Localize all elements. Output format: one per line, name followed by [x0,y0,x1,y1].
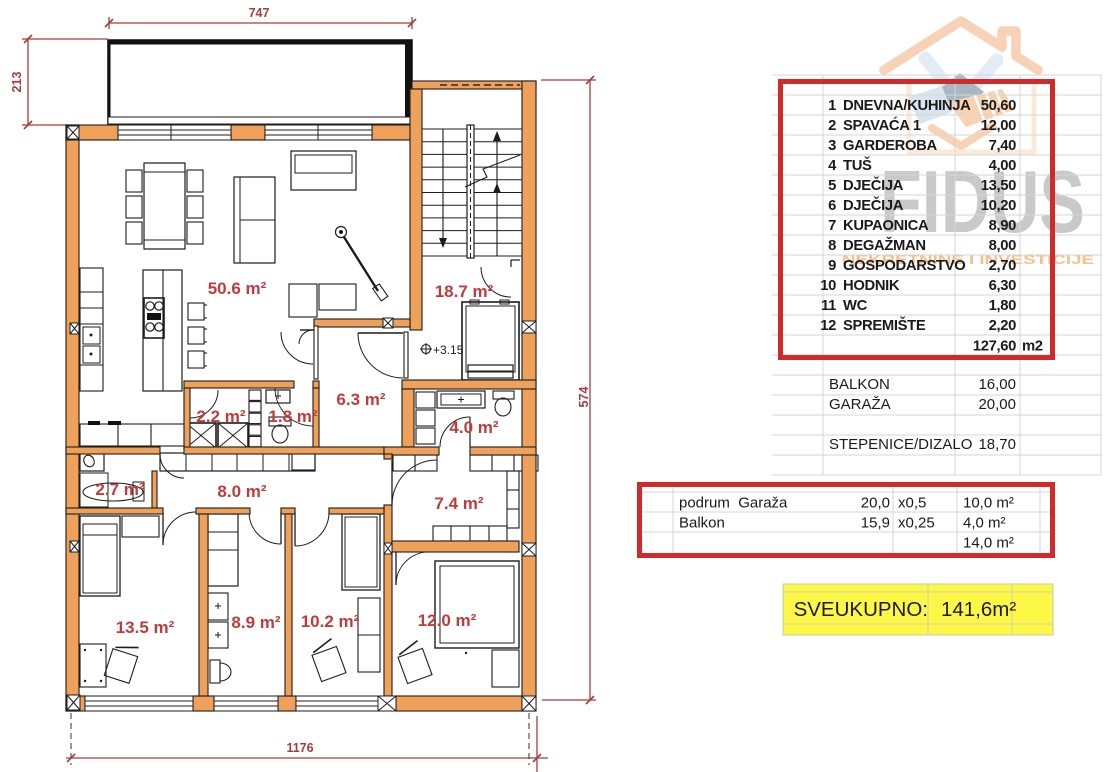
svg-text:8.9 m²: 8.9 m² [231,613,280,632]
svg-text:GARAŽA: GARAŽA [829,396,891,413]
svg-text:STEPENICE/DIZALO: STEPENICE/DIZALO [829,436,972,453]
svg-text:12,00: 12,00 [981,118,1016,134]
svg-text:5: 5 [828,178,836,194]
svg-text:1: 1 [828,98,836,114]
svg-text:18,70: 18,70 [978,436,1016,453]
svg-text:10.2 m²: 10.2 m² [301,612,360,631]
svg-text:SVEUKUPNO:: SVEUKUPNO: [794,598,928,621]
svg-text:10,20: 10,20 [981,198,1016,214]
svg-text:12: 12 [820,318,836,334]
svg-text:6,30: 6,30 [989,278,1017,294]
svg-text:10,0 m²: 10,0 m² [963,495,1014,512]
svg-text:2: 2 [828,118,836,134]
svg-text:2.2 m²: 2.2 m² [196,407,245,426]
svg-text:14,0 m²: 14,0 m² [963,535,1014,552]
svg-text:2,20: 2,20 [989,318,1017,334]
svg-text:1176: 1176 [286,741,313,755]
svg-text:8,00: 8,00 [989,238,1017,254]
svg-text:SPAVAĆA 1: SPAVAĆA 1 [843,116,921,134]
svg-text:127,60: 127,60 [973,339,1016,355]
svg-text:13,50: 13,50 [981,178,1016,194]
svg-text:1,80: 1,80 [989,298,1017,314]
svg-text:213: 213 [10,72,24,93]
svg-text:2,70: 2,70 [989,258,1017,274]
svg-text:7.4 m²: 7.4 m² [434,494,483,513]
svg-text:4.0 m²: 4.0 m² [449,418,498,437]
svg-text:747: 747 [249,6,270,20]
svg-text:3: 3 [828,138,836,154]
svg-text:GOSPODARSTVO: GOSPODARSTVO [843,258,965,274]
svg-text:SPREMIŠTE: SPREMIŠTE [843,316,926,334]
svg-text:7: 7 [828,218,836,234]
svg-text:12.0 m²: 12.0 m² [418,611,477,630]
svg-text:11: 11 [821,298,836,314]
svg-text:DJEČIJA: DJEČIJA [843,196,904,214]
svg-text:TUŠ: TUŠ [843,156,872,174]
svg-text:4: 4 [828,158,837,174]
svg-text:50.6 m²: 50.6 m² [208,279,267,298]
svg-text:x0,5: x0,5 [898,495,926,512]
svg-text:8: 8 [828,238,836,254]
svg-text:20,00: 20,00 [978,396,1016,413]
svg-text:HODNIK: HODNIK [843,278,900,294]
svg-text:m2: m2 [1022,339,1043,355]
svg-text:x0,25: x0,25 [898,515,935,532]
svg-text:WC: WC [843,298,868,314]
svg-text:141,6m²: 141,6m² [941,598,1016,621]
svg-text:4,00: 4,00 [989,158,1017,174]
svg-text:50,60: 50,60 [981,98,1016,114]
svg-text:13.5 m²: 13.5 m² [116,618,175,637]
svg-text:DJEČIJA: DJEČIJA [843,176,904,194]
svg-text:10: 10 [820,278,836,294]
svg-text:9: 9 [828,258,836,274]
svg-text:8,90: 8,90 [989,218,1017,234]
svg-text:4,0 m²: 4,0 m² [963,515,1006,532]
svg-text:7,40: 7,40 [989,138,1017,154]
svg-text:18.7 m²: 18.7 m² [435,282,494,301]
svg-text:6.3 m²: 6.3 m² [336,390,385,409]
svg-text:podrum Garaža: podrum Garaža [679,495,788,512]
svg-text:Balkon: Balkon [679,515,725,532]
svg-text:8.0 m²: 8.0 m² [217,482,266,501]
svg-text:16,00: 16,00 [978,376,1016,393]
svg-text:15,9: 15,9 [861,515,890,532]
svg-text:6: 6 [828,198,836,214]
svg-text:GARDEROBA: GARDEROBA [843,138,938,154]
svg-text:+3.15: +3.15 [433,343,464,357]
svg-text:2.7 m²: 2.7 m² [95,480,144,499]
svg-text:KUPAONICA: KUPAONICA [843,218,929,234]
svg-text:1.8 m²: 1.8 m² [268,407,317,426]
svg-text:DEGAŽMAN: DEGAŽMAN [843,236,926,254]
svg-text:20,0: 20,0 [861,495,890,512]
svg-text:BALKON: BALKON [829,376,890,393]
svg-text:574: 574 [577,387,591,408]
svg-text:DNEVNA/KUHINJA: DNEVNA/KUHINJA [843,98,971,114]
